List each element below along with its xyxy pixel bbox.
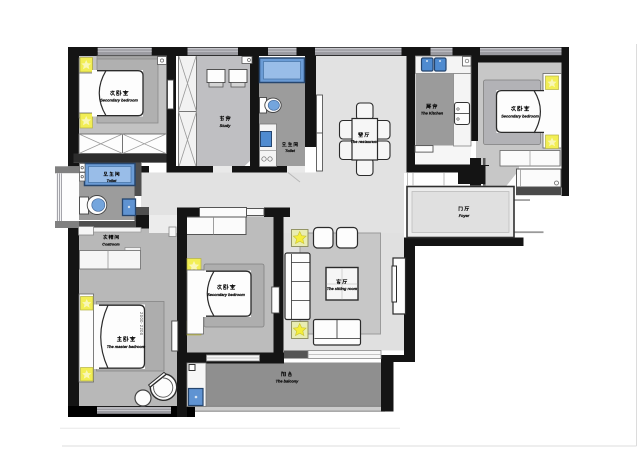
svg-text:Coatroom: Coatroom: [102, 243, 120, 247]
svg-text:Study: Study: [220, 123, 232, 128]
svg-text:2000·2200: 2000·2200: [139, 312, 144, 336]
svg-text:Secondary bedroom: Secondary bedroom: [100, 98, 138, 103]
svg-text:Toilet: Toilet: [107, 179, 117, 183]
svg-text:Secondary bedroom: Secondary bedroom: [501, 114, 539, 119]
svg-text:The restaurant: The restaurant: [350, 139, 378, 144]
svg-text:Toilet: Toilet: [285, 149, 295, 153]
svg-text:The sitting room: The sitting room: [327, 286, 358, 291]
svg-text:The balcony: The balcony: [276, 379, 300, 384]
svg-text:The master bedroom: The master bedroom: [107, 344, 146, 349]
svg-text:Foyer: Foyer: [459, 213, 470, 218]
svg-text:The Kitchen: The Kitchen: [421, 111, 444, 116]
svg-text:Secondary bedroom: Secondary bedroom: [207, 292, 245, 297]
